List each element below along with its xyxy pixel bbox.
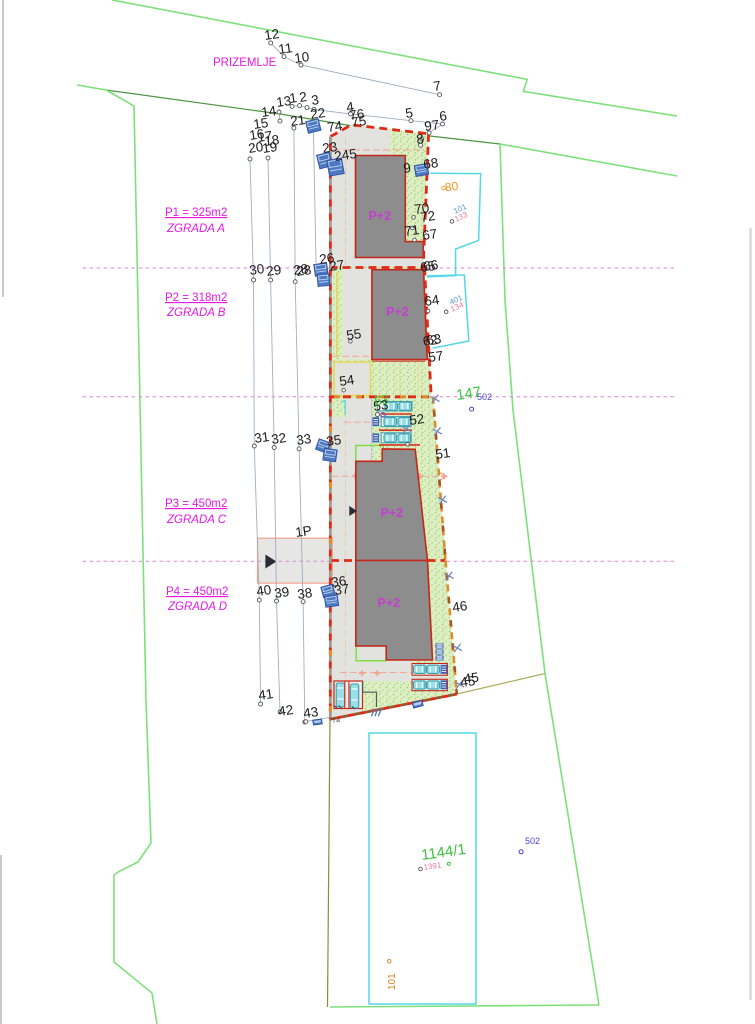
svg-text:35: 35 [325,432,342,449]
svg-text:51: 51 [434,445,451,462]
svg-text:68: 68 [422,155,439,172]
svg-text:66: 66 [422,257,439,274]
svg-text:63: 63 [425,331,442,348]
svg-text:71: 71 [403,222,420,239]
svg-text:502: 502 [525,836,540,846]
svg-text:32: 32 [270,430,287,447]
svg-text:1P: 1P [294,523,312,540]
svg-text:P4 = 450m2: P4 = 450m2 [166,586,228,598]
svg-text:7a: 7a [332,717,341,725]
svg-text:ZGRADA C: ZGRADA C [166,514,227,526]
svg-text:40: 40 [255,582,272,599]
svg-text:41: 41 [257,686,274,703]
svg-text:P2 = 318m2: P2 = 318m2 [165,292,227,304]
svg-text:42: 42 [277,702,294,719]
svg-text:64: 64 [423,292,440,309]
svg-text:P+2: P+2 [381,506,404,520]
svg-text:29: 29 [265,262,282,279]
svg-text:55: 55 [345,326,362,343]
svg-text:P3 = 450m2: P3 = 450m2 [165,498,227,510]
svg-text:33: 33 [295,431,312,448]
svg-text:38: 38 [296,585,313,602]
svg-text:22: 22 [309,105,326,122]
svg-text:19: 19 [261,139,278,156]
svg-text:43: 43 [302,704,319,721]
svg-text:11: 11 [277,40,293,57]
svg-text:28: 28 [295,262,312,279]
svg-text:P1 = 325m2: P1 = 325m2 [165,207,227,219]
svg-text:30: 30 [248,261,265,278]
svg-text:45: 45 [463,670,480,687]
svg-text:31: 31 [253,429,270,446]
svg-text:502: 502 [477,392,492,402]
svg-text:97: 97 [423,117,440,134]
svg-text:P+2: P+2 [378,596,401,610]
svg-text:P+2: P+2 [369,209,392,223]
svg-text:37: 37 [333,581,350,598]
svg-text:PRIZEMLJE: PRIZEMLJE [213,57,277,69]
svg-text:46: 46 [451,598,468,615]
svg-text:74: 74 [326,118,343,135]
svg-text:54: 54 [338,372,355,389]
svg-text:52: 52 [408,411,425,428]
svg-text:72: 72 [419,208,436,225]
svg-text:ZGRADA B: ZGRADA B [166,307,226,319]
svg-text:53: 53 [373,392,389,409]
svg-text:27: 27 [328,257,345,274]
svg-text:57: 57 [427,348,444,365]
svg-text:101: 101 [387,973,398,990]
svg-text:10: 10 [293,49,310,66]
svg-text:ZGRADA D: ZGRADA D [167,601,227,613]
svg-text:39: 39 [273,584,290,601]
svg-text:80: 80 [444,179,459,195]
svg-text:67: 67 [421,226,438,243]
svg-text:12: 12 [263,26,280,43]
svg-text:75: 75 [350,113,367,130]
svg-text:P+2: P+2 [386,305,409,319]
svg-text:245: 245 [333,146,357,164]
svg-text:21: 21 [289,112,306,129]
svg-text:ZGRADA A: ZGRADA A [166,223,225,235]
